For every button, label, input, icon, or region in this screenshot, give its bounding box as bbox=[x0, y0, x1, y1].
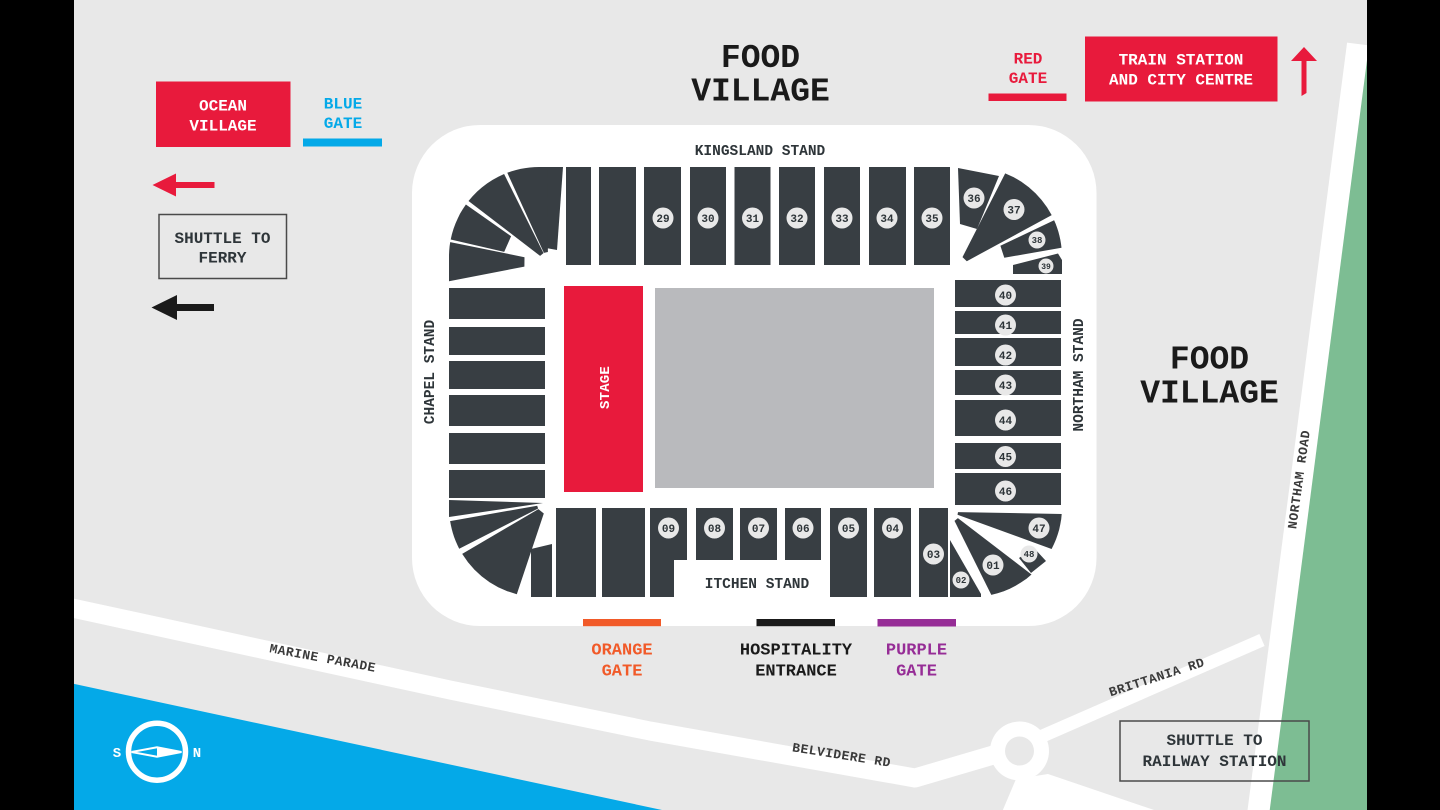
svg-text:GATE: GATE bbox=[1009, 70, 1047, 88]
svg-text:41: 41 bbox=[999, 321, 1013, 333]
svg-text:SHUTTLE TO: SHUTTLE TO bbox=[1166, 732, 1262, 750]
svg-text:02: 02 bbox=[956, 576, 967, 586]
svg-text:FERRY: FERRY bbox=[198, 250, 246, 268]
svg-text:43: 43 bbox=[999, 381, 1013, 393]
svg-text:30: 30 bbox=[701, 214, 714, 226]
svg-text:RAILWAY STATION: RAILWAY STATION bbox=[1142, 753, 1286, 771]
svg-text:36: 36 bbox=[967, 194, 980, 206]
svg-text:46: 46 bbox=[999, 487, 1012, 499]
svg-text:FOOD: FOOD bbox=[1170, 342, 1249, 379]
svg-text:KINGSLAND STAND: KINGSLAND STAND bbox=[695, 144, 826, 160]
svg-text:08: 08 bbox=[708, 524, 722, 536]
svg-text:38: 38 bbox=[1032, 236, 1043, 246]
svg-text:GATE: GATE bbox=[602, 663, 643, 682]
svg-text:VILLAGE: VILLAGE bbox=[1140, 376, 1279, 413]
svg-text:CHAPEL STAND: CHAPEL STAND bbox=[423, 319, 439, 424]
svg-text:PURPLE: PURPLE bbox=[886, 642, 947, 661]
svg-text:37: 37 bbox=[1007, 206, 1020, 218]
svg-text:S: S bbox=[113, 746, 121, 762]
svg-text:31: 31 bbox=[746, 214, 760, 226]
svg-text:ITCHEN STAND: ITCHEN STAND bbox=[705, 577, 810, 593]
svg-text:07: 07 bbox=[752, 524, 765, 536]
svg-text:32: 32 bbox=[790, 214, 803, 226]
svg-text:RED: RED bbox=[1014, 51, 1043, 69]
svg-text:GATE: GATE bbox=[896, 663, 937, 682]
svg-text:35: 35 bbox=[925, 214, 939, 226]
svg-text:29: 29 bbox=[656, 214, 669, 226]
svg-text:48: 48 bbox=[1024, 550, 1035, 560]
svg-text:BLUE: BLUE bbox=[324, 96, 362, 114]
svg-text:VILLAGE: VILLAGE bbox=[691, 74, 830, 111]
svg-text:NORTHAM STAND: NORTHAM STAND bbox=[1072, 318, 1088, 431]
svg-text:09: 09 bbox=[662, 524, 675, 536]
svg-text:04: 04 bbox=[886, 524, 900, 536]
svg-text:47: 47 bbox=[1032, 524, 1045, 536]
svg-text:AND CITY CENTRE: AND CITY CENTRE bbox=[1109, 72, 1253, 90]
svg-text:GATE: GATE bbox=[324, 115, 362, 133]
svg-text:06: 06 bbox=[796, 524, 809, 536]
svg-text:34: 34 bbox=[880, 214, 894, 226]
svg-text:03: 03 bbox=[927, 550, 941, 562]
svg-text:44: 44 bbox=[999, 416, 1013, 428]
svg-text:FOOD: FOOD bbox=[721, 40, 800, 77]
svg-text:VILLAGE: VILLAGE bbox=[189, 118, 256, 136]
svg-text:ENTRANCE: ENTRANCE bbox=[755, 663, 837, 682]
svg-text:STAGE: STAGE bbox=[598, 366, 614, 409]
svg-text:05: 05 bbox=[842, 524, 856, 536]
svg-text:42: 42 bbox=[999, 351, 1012, 363]
svg-text:OCEAN: OCEAN bbox=[199, 98, 247, 116]
svg-text:39: 39 bbox=[1041, 263, 1051, 272]
svg-text:45: 45 bbox=[999, 453, 1013, 465]
svg-text:01: 01 bbox=[986, 561, 1000, 573]
svg-text:HOSPITALITY: HOSPITALITY bbox=[740, 642, 853, 661]
svg-text:SHUTTLE TO: SHUTTLE TO bbox=[174, 230, 270, 248]
svg-text:N: N bbox=[193, 746, 201, 762]
svg-text:TRAIN STATION: TRAIN STATION bbox=[1119, 52, 1244, 70]
svg-text:33: 33 bbox=[835, 214, 849, 226]
svg-text:40: 40 bbox=[999, 291, 1012, 303]
svg-text:ORANGE: ORANGE bbox=[591, 642, 652, 661]
